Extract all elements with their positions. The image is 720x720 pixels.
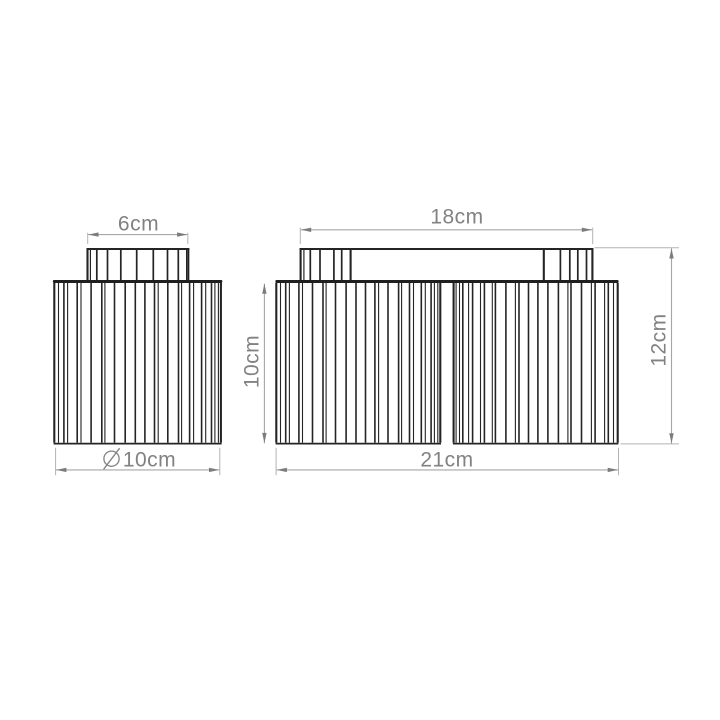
svg-text:21cm: 21cm xyxy=(420,449,473,472)
svg-text:6cm: 6cm xyxy=(118,213,159,236)
svg-text:18cm: 18cm xyxy=(430,206,483,229)
svg-text:12cm: 12cm xyxy=(648,313,671,366)
svg-text:10cm: 10cm xyxy=(123,449,176,472)
svg-text:10cm: 10cm xyxy=(241,335,264,388)
